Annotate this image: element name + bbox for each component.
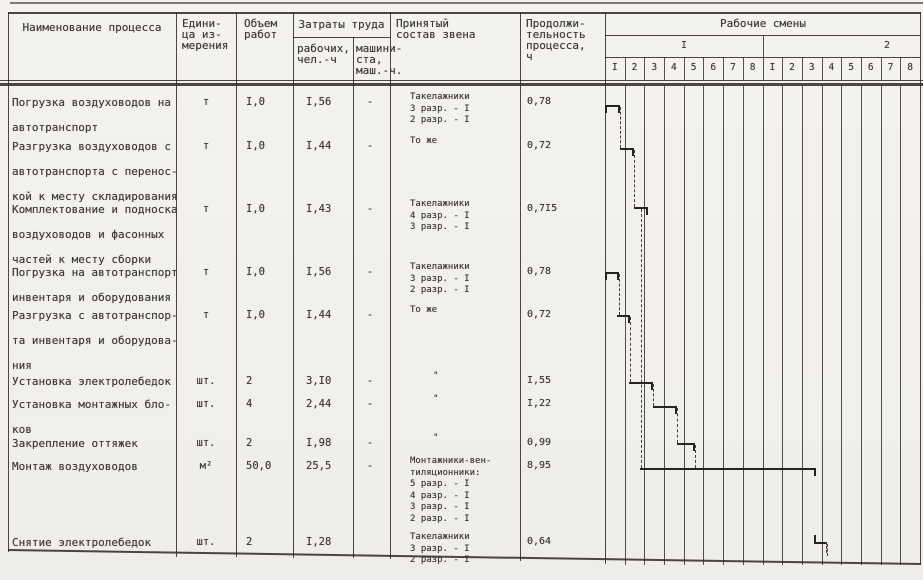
col-line-volume-labor (293, 12, 294, 558)
header-shifts-title: Рабочие смены (605, 18, 921, 29)
labor-workers-cell: I,56 (306, 266, 352, 278)
process-name-cell: Установка электролебедок (12, 369, 180, 394)
labor-workers-cell: I,28 (306, 536, 352, 548)
labor-workers-cell: I,56 (306, 96, 352, 108)
gantt-grid-line (703, 86, 704, 565)
duration-cell: 0,64 (527, 536, 577, 547)
hour-label: 7 (881, 62, 901, 73)
unit-cell: т (178, 309, 234, 321)
gantt-grid-line (822, 57, 823, 80)
gantt-grid-line (763, 57, 764, 80)
gantt-bar-end-tick (646, 207, 648, 215)
unit-cell: шт. (178, 398, 234, 410)
duration-cell: 0,7I5 (527, 203, 577, 214)
crew-cell: Такелажники 4 разр. - I 3 разр. - I (410, 199, 528, 234)
gantt-grid-line (802, 57, 803, 80)
gantt-connector (653, 384, 654, 406)
duration-cell: 0,72 (527, 140, 577, 151)
labor-workers-cell: I,44 (306, 309, 352, 321)
hour-label: I (763, 62, 783, 73)
gantt-connector (641, 209, 642, 468)
duration-cell: 0,78 (527, 266, 577, 277)
gantt-grid-line (861, 86, 862, 565)
hour-label: 3 (802, 62, 822, 73)
gantt-connector (827, 544, 828, 556)
process-name-cell: Закрепление оттяжек (12, 431, 180, 456)
gantt-grid-line (743, 57, 744, 80)
volume-cell: 50,0 (246, 460, 292, 472)
unit-cell: шт. (178, 437, 234, 449)
gantt-bar (653, 406, 677, 408)
labor-workers-cell: I,44 (306, 140, 352, 152)
volume-cell: 2 (246, 536, 292, 548)
volume-cell: I,0 (246, 140, 292, 152)
gantt-grid-line (664, 86, 665, 565)
gantt-connector (695, 445, 696, 468)
volume-cell: I,0 (246, 96, 292, 108)
col-line-duration-gantt (605, 12, 606, 564)
hour-label: 8 (900, 62, 920, 73)
labor-machine-cell: - (356, 375, 384, 387)
gantt-connector (677, 408, 678, 443)
gantt-grid-line (684, 86, 685, 565)
process-name-cell: Разгрузка с автотранспор- та инвентаря и… (12, 303, 180, 378)
hour-label: 6 (861, 62, 881, 73)
header-volume: Объем работ (244, 18, 277, 40)
volume-cell: 4 (246, 398, 292, 410)
duration-cell: I,22 (527, 398, 577, 409)
gantt-grid-line (763, 86, 764, 565)
hour-label: 7 (723, 62, 743, 73)
gantt-grid-line (684, 57, 685, 80)
volume-cell: 2 (246, 437, 292, 449)
crew-cell: Монтажники-вен- тиляционники: 5 разр. - … (410, 456, 528, 526)
hour-label: 8 (743, 62, 763, 73)
volume-cell: I,0 (246, 309, 292, 321)
gantt-bar-end-tick (814, 468, 816, 476)
volume-cell: I,0 (246, 203, 292, 215)
header-labor-machine: машини- ста, маш.-ч. (356, 43, 402, 76)
unit-cell: шт. (178, 536, 234, 548)
shift-1-label: I (605, 40, 763, 51)
hour-label: 2 (782, 62, 802, 73)
gantt-grid-line (723, 86, 724, 565)
crew-cell: То же (410, 305, 528, 317)
header-bottom-line-thick (0, 83, 923, 86)
unit-cell: т (178, 96, 234, 108)
hour-label: 6 (703, 62, 723, 73)
gantt-connector (619, 274, 620, 315)
labor-workers-cell: 2,44 (306, 398, 352, 410)
header-labor-workers: рабочих, чел.-ч (297, 43, 350, 65)
gantt-grid-line (644, 57, 645, 80)
scan-artifact-line (10, 2, 923, 4)
labor-machine-cell: - (356, 140, 384, 152)
gantt-grid-line (664, 57, 665, 80)
gantt-bar-start-tick (814, 535, 816, 544)
header-labor: Затраты труда (293, 19, 390, 30)
labor-workers-cell: I,98 (306, 437, 352, 449)
duration-cell: 8,95 (527, 460, 577, 471)
labor-workers-cell: 25,5 (306, 460, 352, 472)
table-left-border (8, 12, 9, 552)
duration-cell: 0,72 (527, 309, 577, 320)
process-name-cell: Погрузка воздуховодов на автотранспорт (12, 90, 180, 140)
unit-cell: т (178, 266, 234, 278)
gantt-bar-start-tick (605, 272, 607, 280)
hour-label: 3 (644, 62, 664, 73)
gantt-bar (814, 542, 827, 544)
header-crew: Принятый состав звена (396, 18, 475, 40)
process-name-cell: Монтаж воздуховодов (12, 454, 180, 479)
labor-machine-cell: - (356, 309, 384, 321)
gantt-grid-line (802, 86, 803, 565)
process-name-cell: Снятие электролебедок (12, 530, 180, 555)
crew-cell: Такелажники 3 разр. - I 2 разр. - I (410, 532, 528, 567)
gantt-grid-line (822, 86, 823, 565)
gantt-grid-line (625, 57, 626, 80)
labor-header-split-line (293, 37, 390, 38)
labor-machine-cell: - (356, 266, 384, 278)
hour-label: I (605, 62, 625, 73)
labor-machine-cell: - (356, 460, 384, 472)
hour-label: 4 (664, 62, 684, 73)
labor-machine-cell: - (356, 398, 384, 410)
labor-machine-cell: - (356, 437, 384, 449)
header-process: Наименование процесса (8, 22, 176, 33)
volume-cell: 2 (246, 375, 292, 387)
header-bottom-line-thin (0, 80, 923, 81)
scanned-work-schedule-table: Наименование процесса Едини- ца из- мере… (0, 0, 923, 580)
gantt-grid-line (743, 86, 744, 565)
hour-label: 4 (822, 62, 842, 73)
gantt-connector (620, 107, 621, 148)
shift-divider-line (763, 35, 764, 57)
duration-cell: 0,99 (527, 437, 577, 448)
gantt-grid-line (703, 57, 704, 80)
gantt-grid-line (861, 57, 862, 80)
crew-cell: Такелажники 3 разр. - I 2 разр. - I (410, 92, 528, 127)
gantt-grid-line (782, 86, 783, 565)
col-line-labor-crew (390, 12, 391, 559)
header-duration: Продолжи- тельность процесса, ч (526, 18, 586, 62)
crew-cell: То же (410, 136, 528, 148)
gantt-grid-line (841, 57, 842, 80)
crew-cell: Такелажники 3 разр. - I 2 разр. - I (410, 262, 528, 297)
hour-label: 2 (625, 62, 645, 73)
gantt-connector (630, 317, 631, 382)
col-line-unit-volume (236, 12, 237, 557)
hour-label: 5 (684, 62, 704, 73)
unit-cell: шт. (178, 375, 234, 387)
gantt-grid-line (900, 57, 901, 80)
gantt-bar-start-tick (605, 105, 607, 113)
unit-cell: т (178, 203, 234, 215)
gantt-grid-line (625, 86, 626, 565)
gantt-grid-line (841, 86, 842, 565)
header-unit: Едини- ца из- мерения (182, 18, 228, 51)
gantt-connector (634, 150, 635, 207)
duration-cell: 0,78 (527, 96, 577, 107)
table-top-border (8, 12, 921, 14)
unit-cell: м² (178, 460, 234, 472)
labor-workers-cell: 3,I0 (306, 375, 352, 387)
labor-machine-cell: - (356, 96, 384, 108)
gantt-grid-line (644, 86, 645, 565)
shift-2-label: 2 (884, 40, 898, 51)
gantt-grid-line (881, 86, 882, 565)
gantt-grid-line (881, 57, 882, 80)
gantt-grid-line (782, 57, 783, 80)
col-line-workers-machine (353, 37, 354, 558)
hour-label: 5 (841, 62, 861, 73)
labor-workers-cell: I,43 (306, 203, 352, 215)
gantt-grid-line (723, 57, 724, 80)
gantt-grid-line (900, 86, 901, 565)
volume-cell: I,0 (246, 266, 292, 278)
unit-cell: т (178, 140, 234, 152)
table-right-border (920, 12, 921, 565)
gantt-bar (640, 468, 816, 470)
duration-cell: I,55 (527, 375, 577, 386)
labor-machine-cell: - (356, 203, 384, 215)
